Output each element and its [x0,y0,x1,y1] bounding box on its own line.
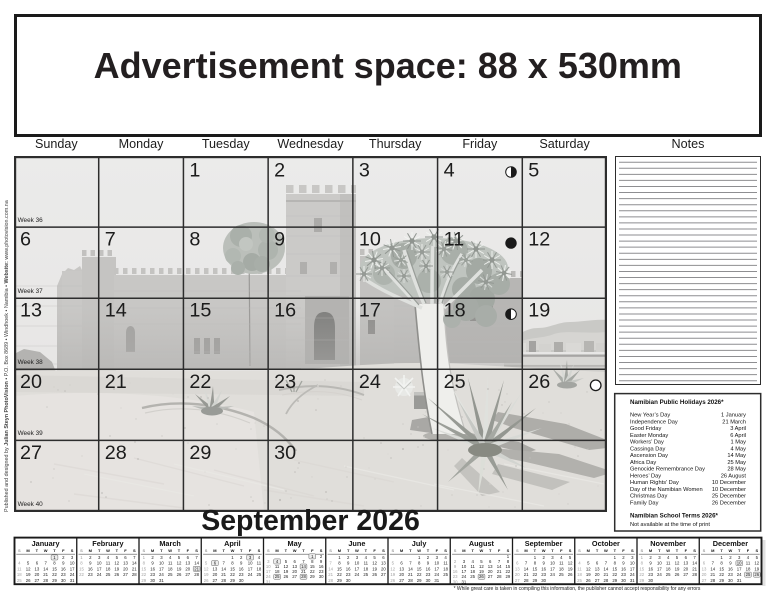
svg-text:March: March [159,539,181,548]
svg-text:S: S [18,548,21,553]
svg-text:29: 29 [719,578,724,583]
svg-text:S: S [205,548,208,553]
svg-text:Genocide Remembrance Day: Genocide Remembrance Day [630,467,705,473]
svg-text:26: 26 [675,572,680,577]
svg-text:24: 24 [248,572,253,577]
svg-text:17: 17 [70,566,75,571]
svg-text:29: 29 [506,574,511,579]
svg-text:21 March: 21 March [722,419,746,425]
svg-text:11: 11 [168,561,173,566]
svg-text:W: W [168,548,172,553]
svg-text:14: 14 [692,561,697,566]
svg-text:February: February [92,539,124,548]
svg-text:S: S [444,548,447,553]
svg-text:20: 20 [381,566,386,571]
svg-text:14 May: 14 May [727,453,746,459]
svg-text:13: 13 [35,566,40,571]
svg-text:24: 24 [630,572,635,577]
svg-text:25: 25 [443,572,448,577]
svg-text:Ascension Day: Ascension Day [630,453,668,459]
svg-text:13: 13 [213,566,218,571]
svg-text:S: S [382,548,385,553]
svg-text:30: 30 [621,578,626,583]
svg-text:Easter Monday: Easter Monday [630,433,668,439]
svg-text:W: W [666,548,670,553]
svg-text:25 December: 25 December [712,494,746,500]
svg-text:19: 19 [675,566,680,571]
svg-text:16: 16 [239,566,244,571]
svg-text:Family Day: Family Day [630,500,659,506]
svg-text:23: 23 [541,572,546,577]
svg-text:26: 26 [204,578,209,583]
svg-text:W: W [231,548,235,553]
svg-text:S: S [693,548,696,553]
svg-text:18: 18 [363,566,368,571]
svg-text:26: 26 [754,572,759,577]
svg-text:S: S [80,548,83,553]
svg-text:14: 14 [221,566,226,571]
svg-text:30: 30 [453,579,458,584]
svg-text:22: 22 [417,572,422,577]
svg-text:15: 15 [337,566,342,571]
svg-text:24: 24 [97,572,102,577]
svg-text:10: 10 [248,561,253,566]
svg-text:Namibian School Terms 2026*: Namibian School Terms 2026* [630,513,719,520]
svg-text:24: 24 [159,572,164,577]
svg-text:19: 19 [754,566,759,571]
svg-text:25: 25 [363,572,368,577]
svg-text:12: 12 [754,561,759,566]
svg-text:30: 30 [541,578,546,583]
svg-text:15: 15 [79,566,84,571]
svg-text:18: 18 [443,566,448,571]
svg-text:1 January: 1 January [721,413,746,419]
svg-text:22: 22 [230,572,235,577]
svg-text:Cassinga Day: Cassinga Day [630,446,666,452]
svg-text:17: 17 [737,566,742,571]
svg-text:3 April: 3 April [730,426,746,432]
svg-text:18: 18 [746,566,751,571]
svg-text:S: S [267,548,270,553]
svg-text:29: 29 [612,578,617,583]
svg-text:28: 28 [497,574,502,579]
svg-text:June: June [348,539,365,548]
svg-text:15: 15 [612,566,617,571]
svg-text:30: 30 [61,578,66,583]
svg-text:27: 27 [702,578,707,583]
svg-text:S: S [391,548,394,553]
svg-text:26: 26 [390,578,395,583]
svg-text:13: 13 [515,566,520,571]
svg-text:22: 22 [639,572,644,577]
svg-text:Workers’ Day: Workers’ Day [630,440,664,446]
svg-text:31: 31 [462,579,467,584]
svg-text:25: 25 [577,578,582,583]
svg-text:11: 11 [666,561,671,566]
svg-text:26: 26 [284,574,289,579]
svg-text:30: 30 [319,574,324,579]
svg-text:W: W [106,548,110,553]
svg-text:11: 11 [17,566,22,571]
svg-text:31: 31 [159,578,164,583]
svg-text:14: 14 [43,566,48,571]
svg-text:16: 16 [150,566,155,571]
svg-text:21: 21 [692,566,697,571]
svg-text:28: 28 [710,578,715,583]
svg-text:S: S [703,548,706,553]
svg-text:S: S [195,548,198,553]
svg-text:16: 16 [541,566,546,571]
svg-text:21: 21 [221,572,226,577]
svg-text:21: 21 [710,572,715,577]
svg-text:21: 21 [604,572,609,577]
svg-text:29: 29 [230,578,235,583]
svg-text:15: 15 [533,566,538,571]
svg-text:11: 11 [443,561,448,566]
svg-text:28: 28 [43,578,48,583]
svg-text:19: 19 [26,572,31,577]
svg-text:31: 31 [70,578,75,583]
svg-text:30: 30 [346,578,351,583]
svg-text:17: 17 [630,566,635,571]
svg-text:30: 30 [648,578,653,583]
svg-text:15: 15 [230,566,235,571]
svg-text:17: 17 [248,566,253,571]
svg-text:30: 30 [150,578,155,583]
svg-text:11: 11 [106,561,111,566]
svg-text:24: 24 [355,572,360,577]
svg-text:16: 16 [621,566,626,571]
svg-text:10: 10 [355,561,360,566]
svg-text:26: 26 [26,578,31,583]
svg-text:29: 29 [141,578,146,583]
svg-text:19: 19 [586,572,591,577]
svg-text:25: 25 [470,574,475,579]
svg-text:Human Rights’ Day: Human Rights’ Day [630,480,679,486]
svg-text:April: April [224,539,241,548]
svg-text:August: August [469,539,495,548]
svg-text:22: 22 [337,572,342,577]
svg-text:16: 16 [426,566,431,571]
svg-text:25: 25 [17,578,22,583]
svg-text:18: 18 [577,572,582,577]
svg-text:Christmas Day: Christmas Day [630,494,667,500]
svg-text:S: S [454,548,457,553]
svg-text:13: 13 [185,561,190,566]
svg-text:13: 13 [381,561,386,566]
svg-text:December: December [713,539,748,548]
svg-text:21: 21 [408,572,413,577]
svg-text:21: 21 [524,572,529,577]
svg-text:23: 23 [621,572,626,577]
svg-text:21: 21 [43,572,48,577]
svg-text:28: 28 [301,574,306,579]
svg-text:28: 28 [328,578,333,583]
svg-text:17: 17 [550,566,555,571]
svg-text:16: 16 [648,566,653,571]
svg-text:20: 20 [515,572,520,577]
svg-text:20: 20 [123,566,128,571]
svg-text:12: 12 [568,561,573,566]
svg-text:1 May: 1 May [731,440,747,446]
svg-text:S: S [507,548,510,553]
svg-text:23: 23 [61,572,66,577]
svg-text:14: 14 [132,561,137,566]
svg-text:23: 23 [728,572,733,577]
svg-text:26 August: 26 August [721,473,747,479]
svg-text:28: 28 [408,578,413,583]
svg-text:17: 17 [97,566,102,571]
svg-text:January: January [32,539,61,548]
svg-text:29: 29 [52,578,57,583]
svg-text:17: 17 [355,566,360,571]
svg-text:10: 10 [159,561,164,566]
svg-text:23: 23 [346,572,351,577]
svg-text:28: 28 [604,578,609,583]
svg-text:S: S [142,548,145,553]
svg-text:14: 14 [408,566,413,571]
svg-text:S: S [755,548,758,553]
svg-text:W: W [542,548,546,553]
svg-text:11: 11 [364,561,369,566]
svg-text:21: 21 [132,566,137,571]
svg-text:12: 12 [26,566,31,571]
svg-text:27: 27 [381,572,386,577]
svg-text:10 December: 10 December [712,487,746,493]
svg-text:11: 11 [257,561,262,566]
svg-text:14: 14 [194,561,199,566]
svg-text:July: July [412,539,428,548]
svg-text:12: 12 [372,561,377,566]
svg-text:S: S [329,548,332,553]
svg-text:10: 10 [70,561,75,566]
svg-text:18: 18 [559,566,564,571]
svg-text:14: 14 [604,566,609,571]
svg-text:15: 15 [719,566,724,571]
svg-text:25: 25 [106,572,111,577]
svg-text:19: 19 [372,566,377,571]
svg-text:26: 26 [568,572,573,577]
svg-text:10: 10 [630,561,635,566]
svg-text:13: 13 [702,566,707,571]
svg-text:14: 14 [710,566,715,571]
svg-text:W: W [44,548,48,553]
svg-text:Namibian Public Holidays 2026*: Namibian Public Holidays 2026* [630,399,724,406]
svg-text:11: 11 [746,561,751,566]
svg-text:23: 23 [150,572,155,577]
svg-text:28: 28 [132,572,137,577]
svg-text:16: 16 [61,566,66,571]
svg-text:31: 31 [434,578,439,583]
svg-text:27: 27 [595,578,600,583]
svg-text:S: S [71,548,74,553]
svg-text:30: 30 [426,578,431,583]
svg-text:19: 19 [177,566,182,571]
svg-text:27: 27 [213,578,218,583]
svg-text:18: 18 [257,566,262,571]
svg-text:15: 15 [639,566,644,571]
svg-text:W: W [604,548,608,553]
svg-text:20: 20 [35,572,40,577]
svg-text:12: 12 [586,566,591,571]
svg-text:S: S [631,548,634,553]
svg-text:22: 22 [612,572,617,577]
svg-text:20: 20 [702,572,707,577]
svg-text:22: 22 [719,572,724,577]
svg-text:W: W [293,548,297,553]
svg-text:S: S [133,548,136,553]
svg-text:12: 12 [114,561,119,566]
svg-text:26: 26 [586,578,591,583]
svg-text:27: 27 [515,578,520,583]
svg-text:21: 21 [328,572,333,577]
svg-text:25: 25 [168,572,173,577]
svg-text:20: 20 [399,572,404,577]
svg-text:W: W [417,548,421,553]
svg-text:28: 28 [692,572,697,577]
svg-text:16: 16 [728,566,733,571]
svg-text:W: W [355,548,359,553]
svg-text:27: 27 [683,572,688,577]
svg-text:6 April: 6 April [730,433,746,439]
svg-text:17: 17 [159,566,164,571]
svg-text:27: 27 [399,578,404,583]
svg-text:14: 14 [524,566,529,571]
svg-text:12: 12 [675,561,680,566]
svg-text:28 May: 28 May [727,467,746,473]
svg-text:23: 23 [239,572,244,577]
svg-text:15: 15 [417,566,422,571]
svg-text:22: 22 [141,572,146,577]
svg-text:W: W [480,548,484,553]
svg-text:12: 12 [177,561,182,566]
svg-text:Day of the Namibian Women: Day of the Namibian Women [630,487,703,493]
svg-text:25 May: 25 May [727,460,746,466]
svg-text:Good Friday: Good Friday [630,426,661,432]
svg-text:25: 25 [666,572,671,577]
svg-text:11: 11 [559,561,564,566]
svg-text:20: 20 [185,566,190,571]
svg-text:23: 23 [88,572,93,577]
svg-text:25: 25 [559,572,564,577]
svg-text:15: 15 [52,566,57,571]
svg-text:27: 27 [35,578,40,583]
svg-text:29: 29 [639,578,644,583]
svg-text:10 December: 10 December [712,480,746,486]
svg-text:31: 31 [737,578,742,583]
svg-text:24: 24 [737,572,742,577]
svg-text:S: S [569,548,572,553]
svg-text:19: 19 [568,566,573,571]
svg-text:27: 27 [185,572,190,577]
svg-text:10: 10 [657,561,662,566]
svg-text:Africa Day: Africa Day [630,460,656,466]
svg-text:13: 13 [683,561,688,566]
svg-text:15: 15 [141,566,146,571]
svg-text:18: 18 [17,572,22,577]
svg-text:27: 27 [292,574,297,579]
svg-text:24: 24 [434,572,439,577]
svg-text:27: 27 [123,572,128,577]
svg-text:13: 13 [123,561,128,566]
svg-text:17: 17 [657,566,662,571]
svg-text:24: 24 [70,572,75,577]
svg-text:26: 26 [177,572,182,577]
svg-text:16: 16 [346,566,351,571]
svg-text:19: 19 [204,572,209,577]
svg-text:October: October [592,539,620,548]
svg-text:22: 22 [79,572,84,577]
svg-text:29: 29 [337,578,342,583]
svg-text:20: 20 [595,572,600,577]
svg-text:10: 10 [97,561,102,566]
svg-text:23: 23 [648,572,653,577]
svg-text:11: 11 [577,566,582,571]
svg-text:Not available at the time of p: Not available at the time of print [630,522,710,528]
svg-text:18: 18 [168,566,173,571]
svg-text:20: 20 [213,572,218,577]
svg-text:26: 26 [479,574,484,579]
svg-text:10: 10 [550,561,555,566]
svg-text:17: 17 [434,566,439,571]
svg-text:29: 29 [417,578,422,583]
svg-text:4 May: 4 May [731,446,747,452]
svg-text:12: 12 [390,566,395,571]
svg-text:23: 23 [426,572,431,577]
svg-text:September: September [525,539,563,548]
svg-text:10: 10 [737,561,742,566]
svg-text:13: 13 [399,566,404,571]
svg-text:New Year’s Day: New Year’s Day [630,413,670,419]
svg-text:19: 19 [390,572,395,577]
svg-text:S: S [320,548,323,553]
svg-text:31: 31 [266,579,271,584]
svg-text:25: 25 [746,572,751,577]
svg-text:18: 18 [106,566,111,571]
svg-text:26: 26 [114,572,119,577]
svg-text:S: S [640,548,643,553]
svg-text:27: 27 [488,574,493,579]
svg-text:29: 29 [533,578,538,583]
svg-text:25: 25 [257,572,262,577]
svg-text:25: 25 [275,574,280,579]
svg-text:31: 31 [630,578,635,583]
svg-text:30: 30 [239,578,244,583]
svg-text:20: 20 [683,566,688,571]
svg-text:May: May [287,539,302,548]
svg-text:28: 28 [194,572,199,577]
svg-text:24: 24 [657,572,662,577]
svg-text:24: 24 [550,572,555,577]
svg-text:12: 12 [204,566,209,571]
svg-text:November: November [650,539,686,548]
svg-text:18: 18 [666,566,671,571]
svg-text:W: W [729,548,733,553]
svg-text:16: 16 [88,566,93,571]
svg-text:Independence Day: Independence Day [630,419,678,425]
svg-text:26: 26 [372,572,377,577]
svg-text:Heroes’ Day: Heroes’ Day [630,473,661,479]
svg-text:28: 28 [524,578,529,583]
svg-text:30: 30 [728,578,733,583]
svg-text:13: 13 [595,566,600,571]
svg-text:14: 14 [328,566,333,571]
svg-text:S: S [578,548,581,553]
svg-text:28: 28 [221,578,226,583]
svg-text:29: 29 [310,574,315,579]
svg-text:26 December: 26 December [712,500,746,506]
svg-text:S: S [516,548,519,553]
